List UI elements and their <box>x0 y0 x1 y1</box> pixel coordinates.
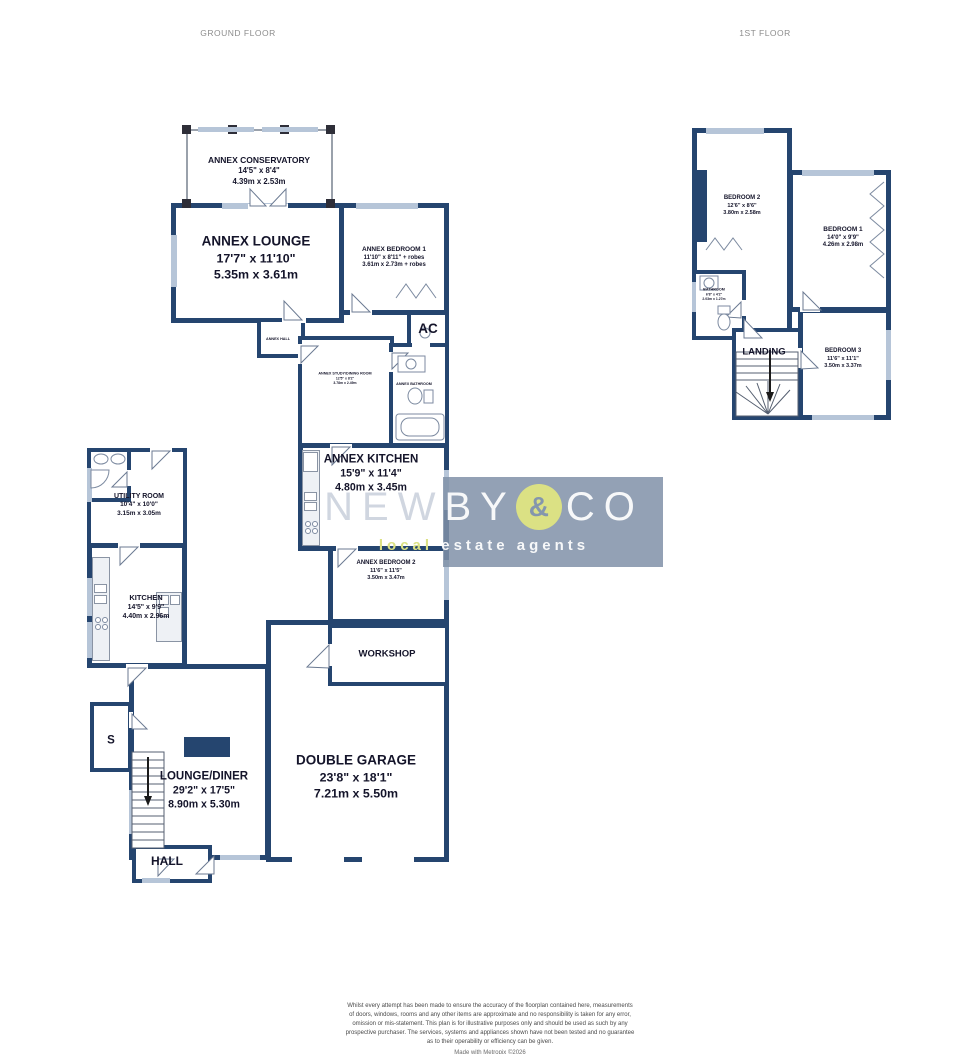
room-label-bedroom-2: BEDROOM 2 12'6" x 8'6" 3.80m x 2.58m <box>723 195 760 217</box>
fireplace <box>184 737 230 757</box>
room-dims-imperial: 12'6" x 8'6" <box>723 203 760 210</box>
room-name: ANNEX CONSERVATORY <box>208 155 310 166</box>
tagline-accent: local <box>379 537 433 554</box>
room-dims-imperial: 11'6" x 11'1" <box>824 356 861 363</box>
room-dims-metric: 3.78m x 2.49m <box>318 381 371 386</box>
room-label-bathroom-1f: BATHROOM 6'8" x 4'2" 2.03m x 1.27m <box>702 288 725 302</box>
window <box>812 415 874 420</box>
kitchen-appliance <box>170 595 180 605</box>
kitchen-counter <box>92 557 110 661</box>
door-opening <box>742 300 746 316</box>
window <box>802 170 874 176</box>
room-dims-metric: 3.50m x 3.47m <box>356 575 415 582</box>
conservatory-post <box>326 199 335 208</box>
window <box>886 330 891 380</box>
room-label-double-garage: DOUBLE GARAGE 23'8" x 18'1" 7.21m x 5.50… <box>296 752 416 803</box>
door-opening <box>129 712 133 728</box>
room-dims-imperial: 14'5" x 8'4" <box>208 166 310 176</box>
room-label-annex-lounge: ANNEX LOUNGE 17'7" x 11'10" 5.35m x 3.61… <box>202 233 311 284</box>
door-opening <box>328 644 332 666</box>
room-dims-imperial: 11'10" x 8'11" + robes <box>362 254 426 262</box>
kitchen-sink <box>94 584 107 593</box>
door-opening <box>798 348 802 368</box>
window <box>87 468 92 502</box>
room-label-store: S <box>107 733 115 748</box>
room-label-hall: HALL <box>151 854 183 870</box>
chimney-breast <box>692 170 707 242</box>
door-opening <box>298 344 302 364</box>
annex-kitchen-fridge <box>303 452 318 472</box>
ground-floor-header: GROUND FLOOR <box>200 28 275 38</box>
brand-text-by: BY <box>444 479 515 535</box>
window <box>129 790 134 834</box>
window <box>692 282 696 312</box>
disclaimer-line: omission or mis-statement. This plan is … <box>0 1020 980 1029</box>
room-dims-imperial: 23'8" x 18'1" <box>296 770 416 786</box>
door-opening <box>389 352 393 372</box>
door-opening <box>800 307 820 312</box>
window <box>198 127 254 132</box>
room-dims-imperial: 14'5" x 9'9" <box>123 603 170 612</box>
watermark-brand-row: NEWBY & CO <box>305 479 663 535</box>
door-opening <box>412 343 430 347</box>
disclaimer-line: as to their operability or efficiency ca… <box>0 1038 980 1047</box>
room-dims-imperial: 17'7" x 11'10" <box>202 251 311 267</box>
room-label-workshop: WORKSHOP <box>359 649 416 662</box>
garage-door <box>292 857 344 862</box>
room-dims-metric: 2.03m x 1.27m <box>702 297 725 302</box>
room-dims-imperial: 10'4" x 10'0" <box>114 501 164 509</box>
window <box>220 855 260 860</box>
room-dims-metric: 3.50m x 3.37m <box>824 363 861 370</box>
room-lounge-diner <box>129 664 270 860</box>
room-label-ac: AC <box>418 320 438 338</box>
door-opening <box>282 318 306 323</box>
room-landing <box>732 328 802 420</box>
room-name: S <box>107 733 115 748</box>
room-label-annex-bathroom: ANNEX BATHROOM <box>396 383 432 388</box>
window <box>262 127 318 132</box>
room-label-annex-conservatory: ANNEX CONSERVATORY 14'5" x 8'4" 4.39m x … <box>208 155 310 187</box>
room-dims-metric: 4.39m x 2.53m <box>208 177 310 187</box>
room-dims-imperial: 11'6" x 11'5" <box>356 568 415 575</box>
room-name: WORKSHOP <box>359 649 416 662</box>
conservatory-post <box>326 125 335 134</box>
room-name: BEDROOM 1 <box>823 226 863 235</box>
window <box>171 235 177 287</box>
agency-watermark: NEWBY & CO local estate agents <box>305 477 663 567</box>
room-name: UTILITY ROOM <box>114 492 164 501</box>
watermark-tagline: local estate agents <box>305 537 663 554</box>
kitchen-sink <box>94 595 107 604</box>
room-name: ANNEX KITCHEN <box>324 452 419 467</box>
ampersand-badge: & <box>516 484 562 530</box>
room-name: HALL <box>151 854 183 870</box>
window <box>142 878 170 883</box>
door-opening <box>127 470 131 486</box>
room-name: ANNEX LOUNGE <box>202 233 311 251</box>
door-opening <box>150 448 172 452</box>
door-opening <box>248 204 288 209</box>
room-name: LANDING <box>742 347 785 360</box>
door-opening <box>330 444 352 449</box>
door-opening <box>350 310 372 315</box>
room-label-annex-study-dining: ANNEX STUDY/DINING ROOM 12'5" x 8'2" 3.7… <box>318 372 371 386</box>
room-dims-metric: 5.35m x 3.61m <box>202 267 311 283</box>
disclaimer-line: Whilst every attempt has been made to en… <box>0 1002 980 1011</box>
metropix-credit: Made with Metropix ©2026 <box>0 1050 980 1054</box>
room-dims-metric: 3.61m x 2.73m + robes <box>362 262 426 270</box>
room-label-kitchen: KITCHEN 14'5" x 9'9" 4.40m x 2.96m <box>123 593 170 621</box>
disclaimer-line: of doors, windows, rooms and any other i… <box>0 1011 980 1020</box>
room-dims-metric: 8.90m x 5.30m <box>160 799 248 813</box>
window <box>356 203 418 209</box>
room-label-bedroom-3: BEDROOM 3 11'6" x 11'1" 3.50m x 3.37m <box>824 348 861 370</box>
brand-text-new: NEW <box>324 479 444 535</box>
room-annex-bathroom <box>389 343 449 448</box>
room-label-annex-hall: ANNEX HALL <box>266 338 290 343</box>
conservatory-post <box>182 199 191 208</box>
room-dims-metric: 4.40m x 2.96m <box>123 612 170 621</box>
window <box>706 128 764 134</box>
room-dims-metric: 3.80m x 2.58m <box>723 210 760 217</box>
room-label-bedroom-1: BEDROOM 1 14'0" x 9'9" 4.26m x 2.98m <box>823 226 863 250</box>
door-opening <box>126 664 148 669</box>
room-name: BEDROOM 2 <box>723 195 760 203</box>
room-name: KITCHEN <box>123 593 170 603</box>
room-name: AC <box>418 320 438 338</box>
room-name: DOUBLE GARAGE <box>296 752 416 770</box>
room-label-landing: LANDING <box>742 347 785 360</box>
door-opening <box>118 543 140 548</box>
room-label-utility: UTILITY ROOM 10'4" x 10'0" 3.15m x 3.05m <box>114 492 164 518</box>
room-dims-metric: 4.26m x 2.98m <box>823 242 863 250</box>
first-floor-header: 1ST FLOOR <box>739 28 791 38</box>
room-label-lounge-diner: LOUNGE/DINER 29'2" x 17'5" 8.90m x 5.30m <box>160 769 248 812</box>
room-name: ANNEX BEDROOM 1 <box>362 246 426 255</box>
brand-text-co: CO <box>566 479 644 535</box>
room-name: ANNEX HALL <box>266 338 290 343</box>
disclaimer-line: prospective purchaser. The services, sys… <box>0 1029 980 1038</box>
room-dims-metric: 7.21m x 5.50m <box>296 786 416 802</box>
room-label-annex-bedroom-1: ANNEX BEDROOM 1 11'10" x 8'11" + robes 3… <box>362 246 426 270</box>
disclaimer: Whilst every attempt has been made to en… <box>0 1002 980 1054</box>
garage-door <box>362 857 414 862</box>
room-dims-imperial: 29'2" x 17'5" <box>160 785 248 799</box>
conservatory-post <box>182 125 191 134</box>
floorplan-page: GROUND FLOOR 1ST FLOOR <box>0 0 980 1054</box>
room-annex-study-dining <box>298 336 394 448</box>
tagline-rest: estate agents <box>433 537 589 554</box>
room-dims-imperial: 14'0" x 9'9" <box>823 234 863 242</box>
room-name: ANNEX BATHROOM <box>396 383 432 388</box>
room-name: BEDROOM 3 <box>824 348 861 356</box>
door-opening <box>742 335 762 340</box>
room-dims-metric: 3.15m x 3.05m <box>114 510 164 518</box>
room-name: LOUNGE/DINER <box>160 769 248 784</box>
